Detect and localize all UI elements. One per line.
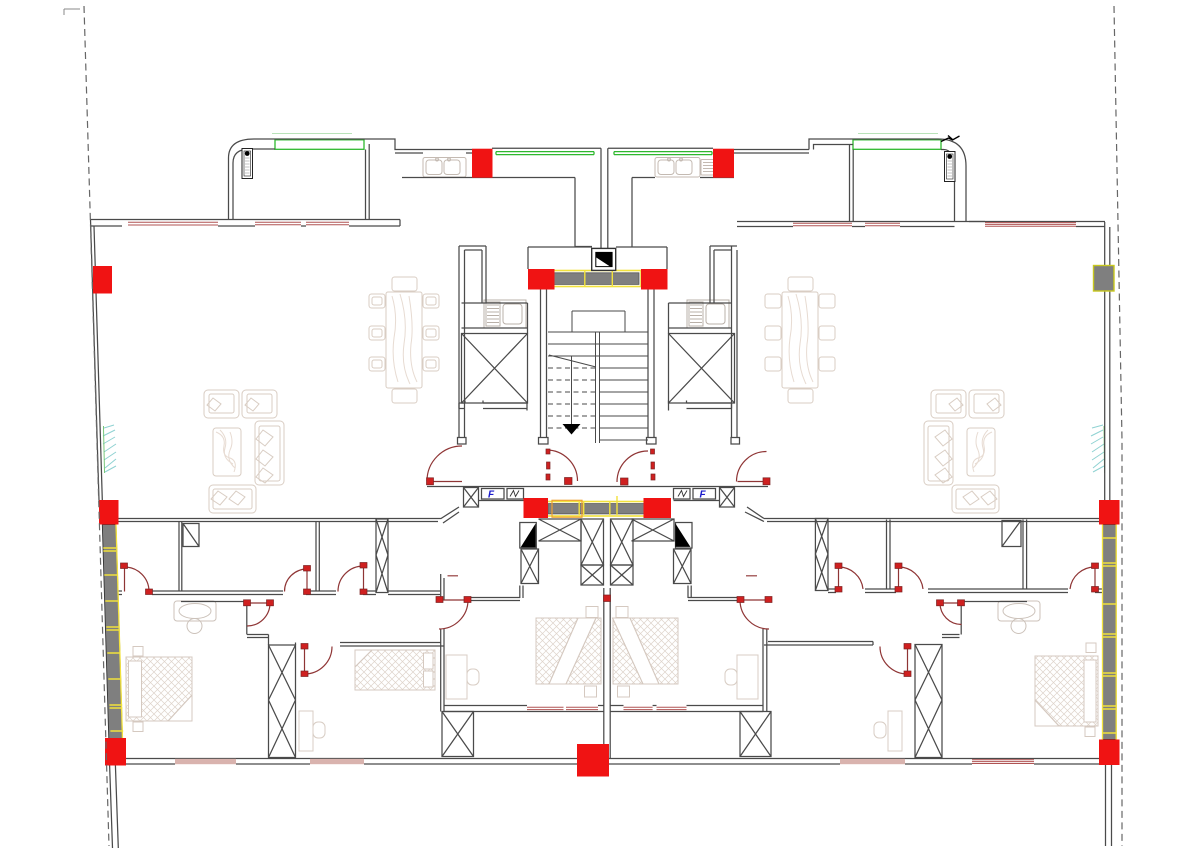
- svg-text:F: F: [488, 490, 495, 501]
- svg-text:F: F: [700, 490, 707, 501]
